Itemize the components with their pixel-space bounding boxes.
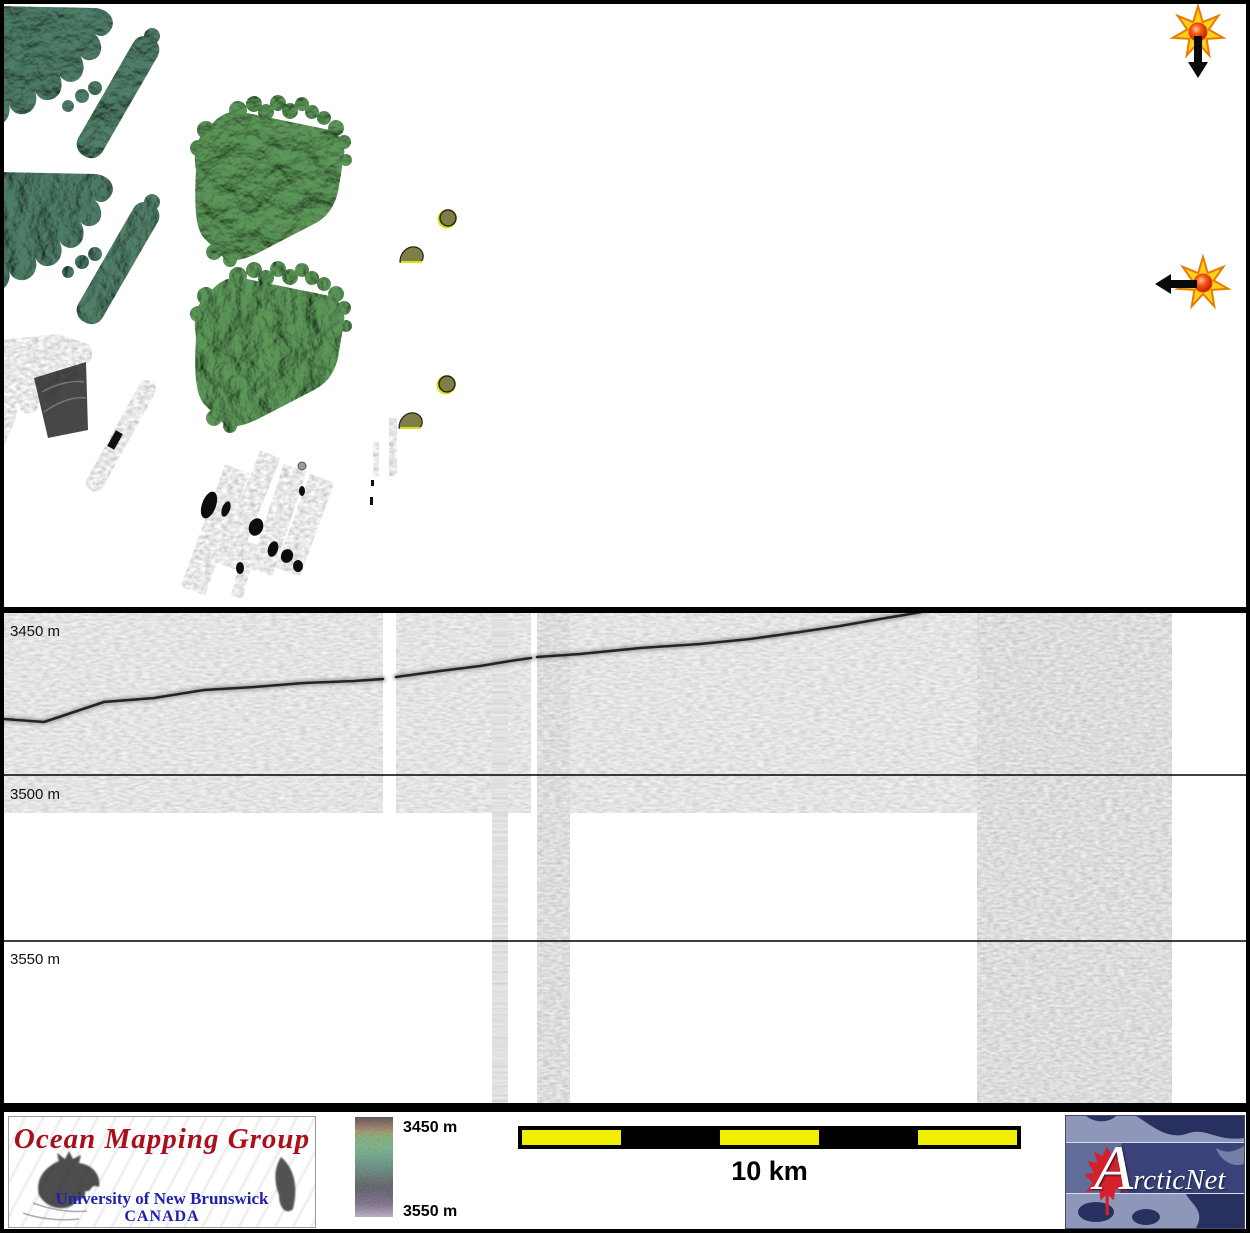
omg-title: Ocean Mapping Group (9, 1123, 315, 1156)
scalebar-segment (621, 1130, 720, 1145)
echogram-section-2 (396, 613, 531, 813)
survey-figure: 3450 m 3500 m 3550 m Ocean Mapping Group… (0, 0, 1250, 1233)
depth-colorbar (355, 1117, 393, 1217)
omg-university: University of New Brunswick (9, 1189, 315, 1209)
scalebar-segment (522, 1130, 621, 1145)
legend-footer: Ocean Mapping Group University of New Br… (4, 1112, 1246, 1229)
arcticnet-label: ArcticNet (1094, 1138, 1242, 1210)
scalebar-segment (819, 1130, 918, 1145)
echogram: 3450 m 3500 m 3550 m (4, 613, 1246, 1103)
depth-label-3500: 3500 m (10, 786, 60, 803)
omg-country: CANADA (9, 1208, 315, 1226)
colorbar-bottom-label: 3550 m (403, 1203, 457, 1221)
arcticnet-logo: ArcticNet (1065, 1115, 1245, 1229)
scalebar-segment (918, 1130, 1017, 1145)
bathymetry-map-panel (4, 4, 1246, 607)
echogram-section-3a (537, 613, 570, 1103)
omg-logo: Ocean Mapping Group University of New Br… (8, 1116, 316, 1228)
echogram-striped-column (492, 613, 508, 1103)
depth-label-3450: 3450 m (10, 623, 60, 640)
sun-illumination-east-icon (1155, 257, 1228, 306)
depth-label-3550: 3550 m (10, 951, 60, 968)
echogram-section-3b (570, 613, 977, 813)
survey-dot-set-2 (399, 376, 456, 429)
bathymetry-map (4, 4, 1246, 607)
scalebar-segment (720, 1130, 819, 1145)
echogram-panel: 3450 m 3500 m 3550 m (4, 613, 1246, 1103)
survey-dot-set-1 (400, 210, 457, 263)
sun-illumination-north-icon (1173, 6, 1224, 78)
scalebar-label: 10 km (518, 1156, 1021, 1187)
echogram-section-right (977, 613, 1172, 1103)
map-scalebar (518, 1126, 1021, 1149)
echogram-section-1 (4, 613, 383, 813)
colorbar-top-label: 3450 m (403, 1119, 457, 1137)
